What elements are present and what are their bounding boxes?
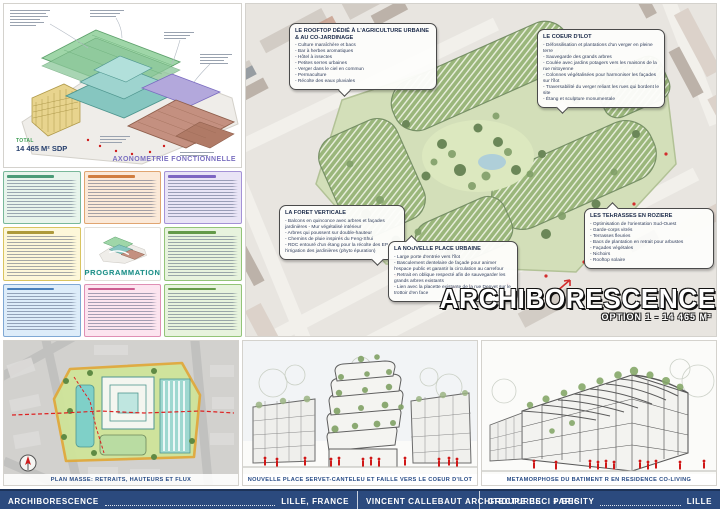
footer-client-city: LILLE [687, 497, 712, 506]
callout-bullet: - Défossilisation et plantations d'un ve… [543, 43, 659, 55]
project-title: ARCHIBORESCENCE [440, 283, 716, 315]
footer-client-name: GROUPE BECI + BECITY [488, 497, 594, 506]
callout-bullet: - Récolte des eaux pluviales [295, 79, 431, 85]
footer-segment-architect: VINCENT CALLEBAUT ARCHITECTURES PARIS [357, 491, 479, 509]
callout-bullets: - Balcons en quinconce avec arbres et fa… [285, 219, 399, 255]
north-arrow-icon [20, 455, 36, 471]
callout-bullet: - Colonnes végétalisées pour harmoniser … [543, 73, 659, 85]
micro-text [168, 236, 238, 275]
program-box [3, 284, 81, 337]
metamorphosis-caption: METAMORPHOSE DU BATIMENT R EN RESIDENCE … [482, 474, 716, 485]
footer-bar: ARCHIBORESCENCE LILLE, FRANCE VINCENT CA… [0, 489, 720, 509]
callout-title: LES TERRASSES EN ROZIERE [590, 213, 708, 220]
program-box [164, 171, 242, 224]
callout-rooftop: LE ROOFTOP DÉDIÉ À L'AGRICULTURE URBAINE… [289, 23, 437, 90]
project-subtitle: OPTION 1 - 14 465 M² [601, 312, 712, 322]
footer-project-location: LILLE, FRANCE [281, 497, 349, 506]
place-caption: NOUVELLE PLACE SERVET-CANTELEU ET FAILLE… [243, 474, 477, 485]
footer-divider-line [105, 496, 275, 506]
callout-coeur-ilot: LE COEUR D'ILOT - Défossilisation et pla… [537, 29, 665, 108]
callout-title: LE ROOFTOP DÉDIÉ À L'AGRICULTURE URBAINE… [295, 28, 431, 41]
place-render-panel: NOUVELLE PLACE SERVET-CANTELEU ET FAILLE… [242, 340, 478, 486]
total-area-value: 14 465 M² SDP [16, 144, 67, 153]
program-box [84, 171, 162, 224]
callout-terrasses: LES TERRASSES EN ROZIERE - Optimisation … [584, 208, 714, 269]
callout-title: LA FORET VERTICALE [285, 210, 399, 217]
micro-text [7, 180, 77, 219]
program-box [3, 227, 81, 280]
program-box [3, 171, 81, 224]
program-center: PROGRAMMATION [84, 227, 162, 280]
place-rendering [243, 341, 477, 485]
footer-segment-project: ARCHIBORESCENCE LILLE, FRANCE [0, 491, 357, 509]
callout-bullet: - Traversabilité du verger reliant les r… [543, 85, 659, 97]
micro-text [168, 293, 238, 332]
program-grid: PROGRAMMATION [3, 171, 242, 337]
axon-caption: AXONOMETRIE FONCTIONNELLE [112, 156, 236, 163]
callout-bullet: - Balcons en quinconce avec arbres et fa… [285, 219, 399, 231]
callout-bullets: - Optimisation de l'orientation Sud-Oues… [590, 222, 708, 264]
site-plan [4, 341, 238, 485]
program-box [164, 284, 242, 337]
annotation-cluster [10, 10, 50, 26]
callout-bullet: - Rooftop solaire [590, 258, 708, 264]
program-box [84, 284, 162, 337]
micro-text [7, 293, 77, 332]
callout-foret-verticale: LA FORET VERTICALE - Balcons en quinconc… [279, 205, 405, 260]
footer-divider-line [600, 496, 680, 506]
plan-caption: PLAN MASSE: RETRAITS, HAUTEURS ET FLUX [4, 474, 238, 485]
callout-bullet: - Basculement dentelaire de façade pour … [394, 261, 512, 273]
micro-text [7, 236, 77, 275]
micro-text [88, 293, 158, 332]
program-thumbnail [95, 231, 149, 264]
micro-text [88, 180, 158, 219]
callout-bullet: - Coulée avec jardins potagers vers les … [543, 61, 659, 73]
micro-text [168, 180, 238, 219]
presentation-board: TOTAL 14 465 M² SDP AXONOMETRIE FONCTION… [0, 0, 720, 509]
footer-segment-client: GROUPE BECI + BECITY LILLE [479, 491, 720, 509]
metamorphosis-panel: METAMORPHOSE DU BATIMENT R EN RESIDENCE … [481, 340, 717, 486]
site-plan-panel: PLAN MASSE: RETRAITS, HAUTEURS ET FLUX [3, 340, 239, 486]
callout-bullet: - RDC entouré d'un étang pour la récolte… [285, 243, 399, 255]
program-box [164, 227, 242, 280]
metamorphosis-rendering [482, 341, 716, 485]
callout-title: LE COEUR D'ILOT [543, 34, 659, 41]
callout-bullets: - Défossilisation et plantations d'un ve… [543, 43, 659, 103]
axonometric-panel: TOTAL 14 465 M² SDP AXONOMETRIE FONCTION… [3, 3, 242, 168]
footer-project-name: ARCHIBORESCENCE [8, 497, 99, 506]
program-title: PROGRAMMATION [85, 268, 161, 277]
callout-bullets: - Culture maraîchère et bacs- Bar à herb… [295, 43, 431, 85]
total-area: TOTAL 14 465 M² SDP [16, 138, 67, 153]
